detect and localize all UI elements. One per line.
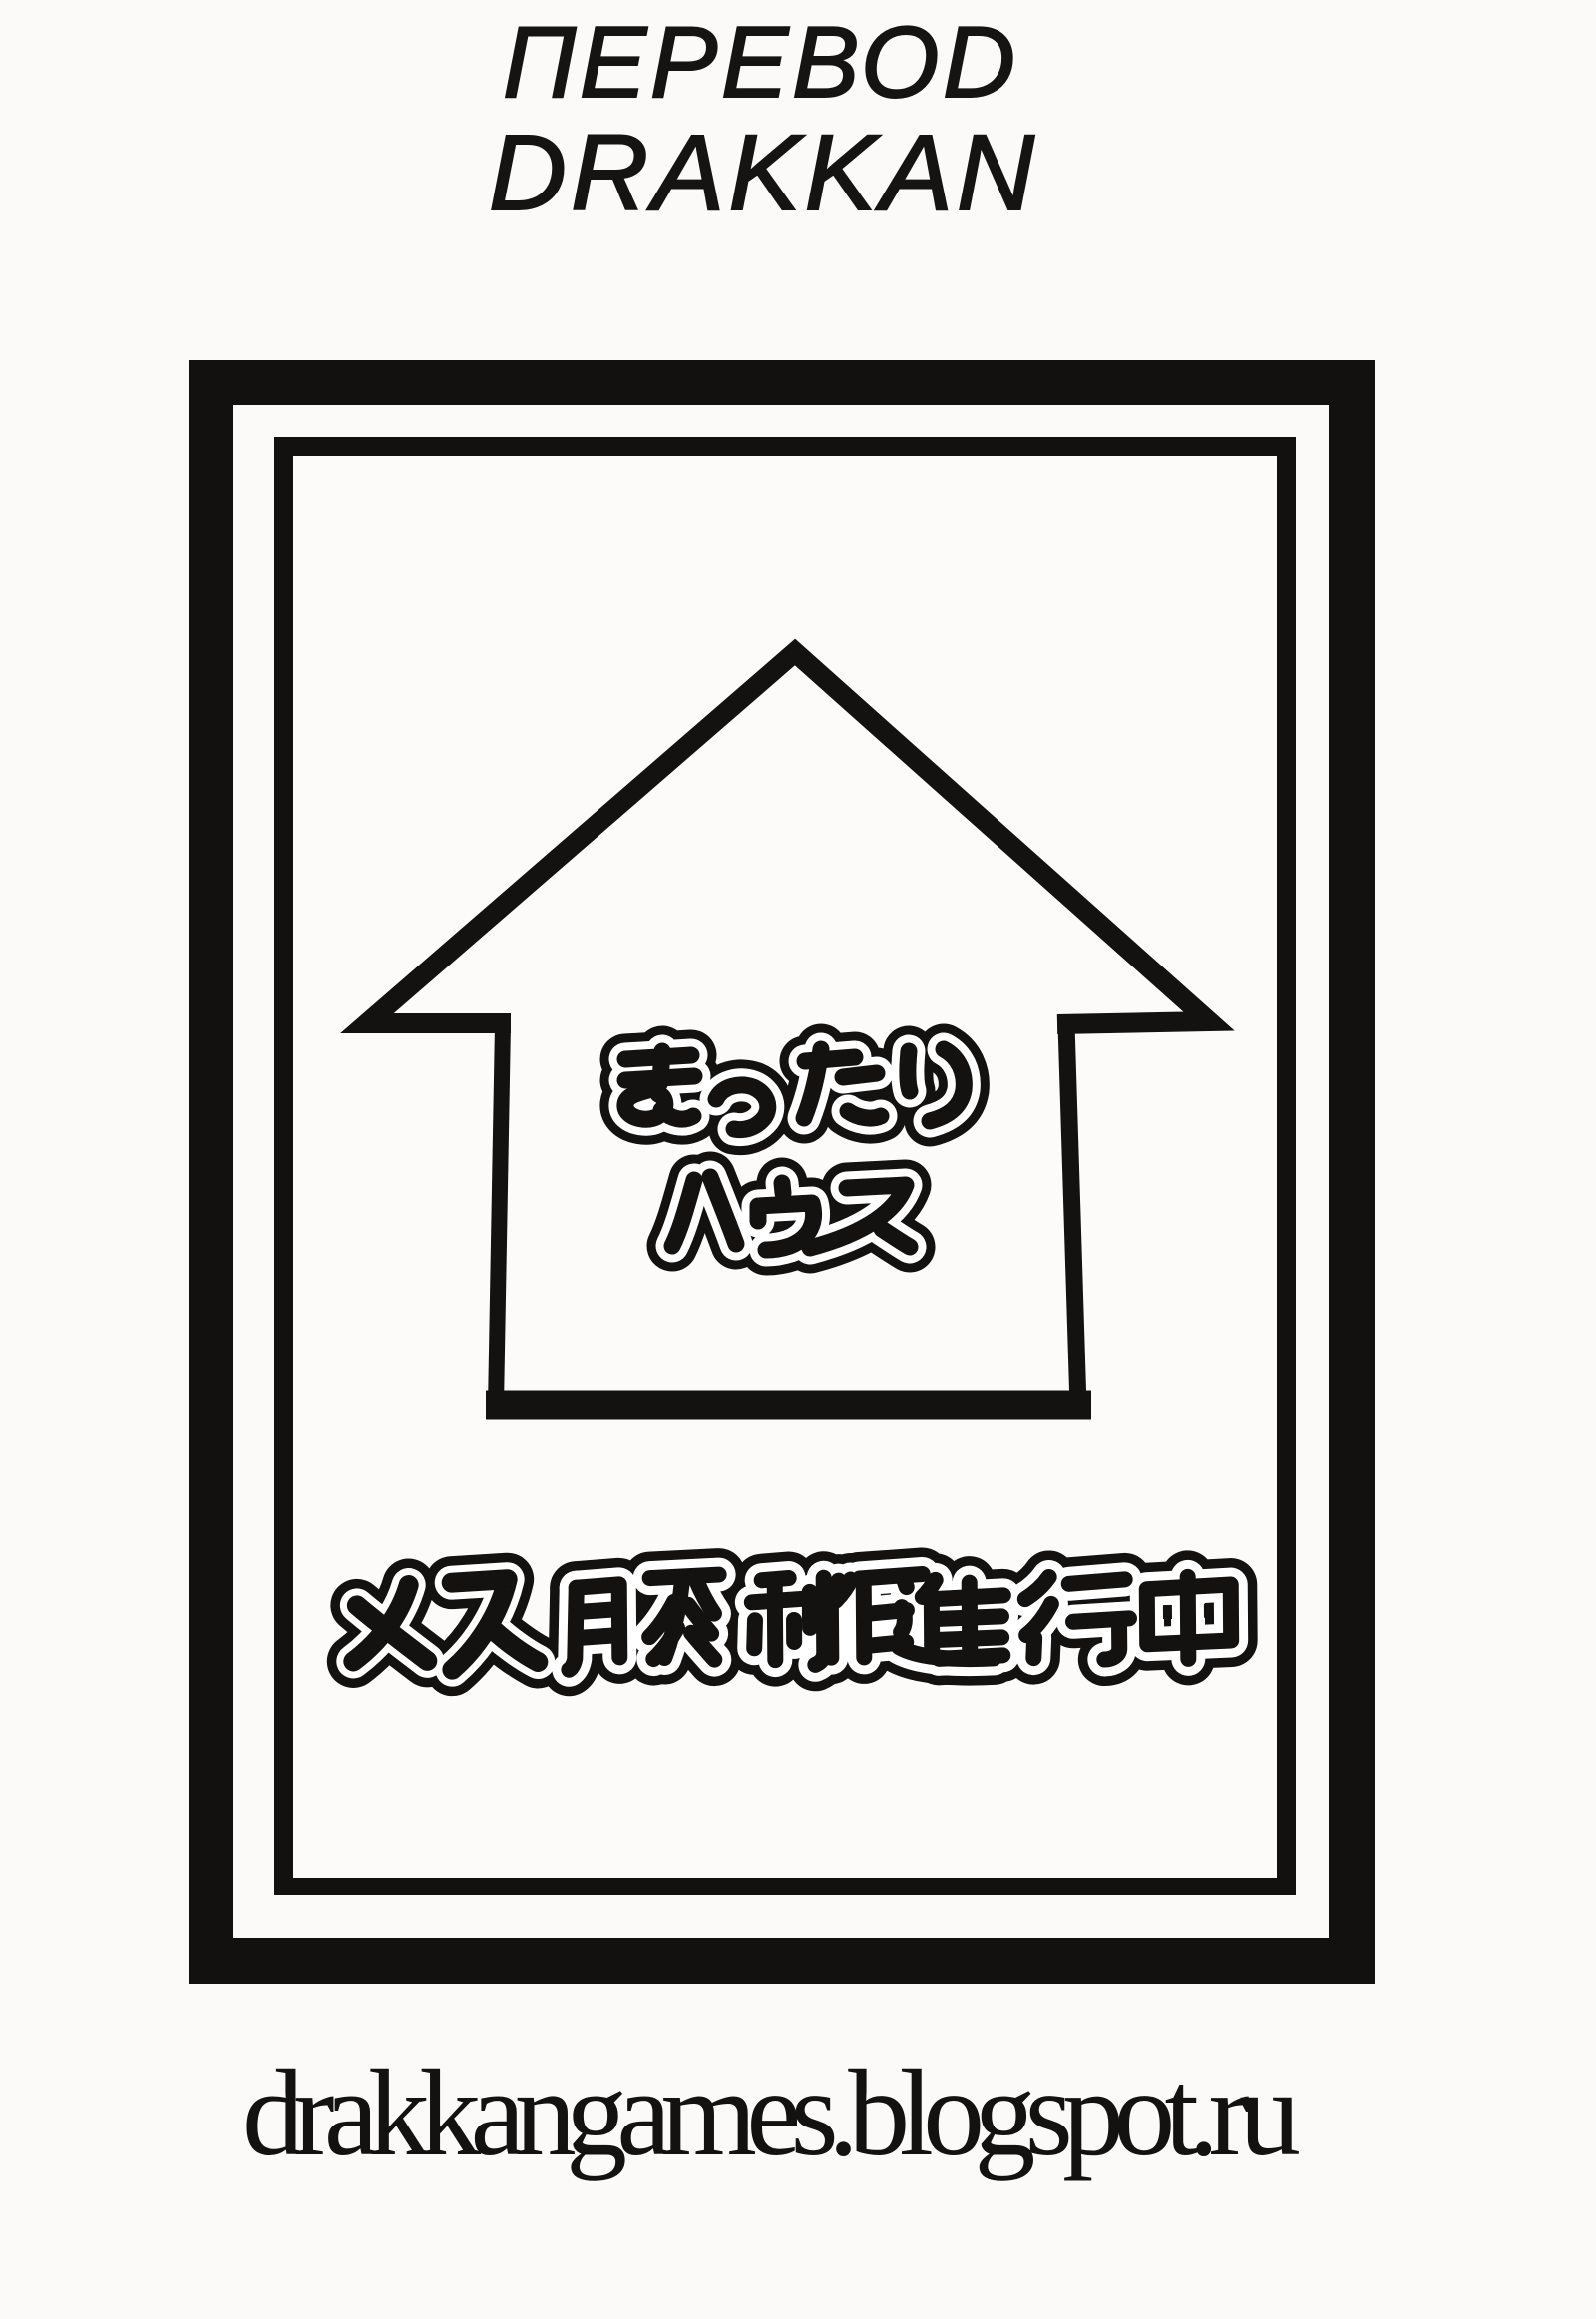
svg-text:drakkangames.blogspot.ru: drakkangames.blogspot.ru xyxy=(242,2045,1301,2181)
svg-text:ПЕРЕВОD: ПЕРЕВОD xyxy=(503,7,1015,119)
